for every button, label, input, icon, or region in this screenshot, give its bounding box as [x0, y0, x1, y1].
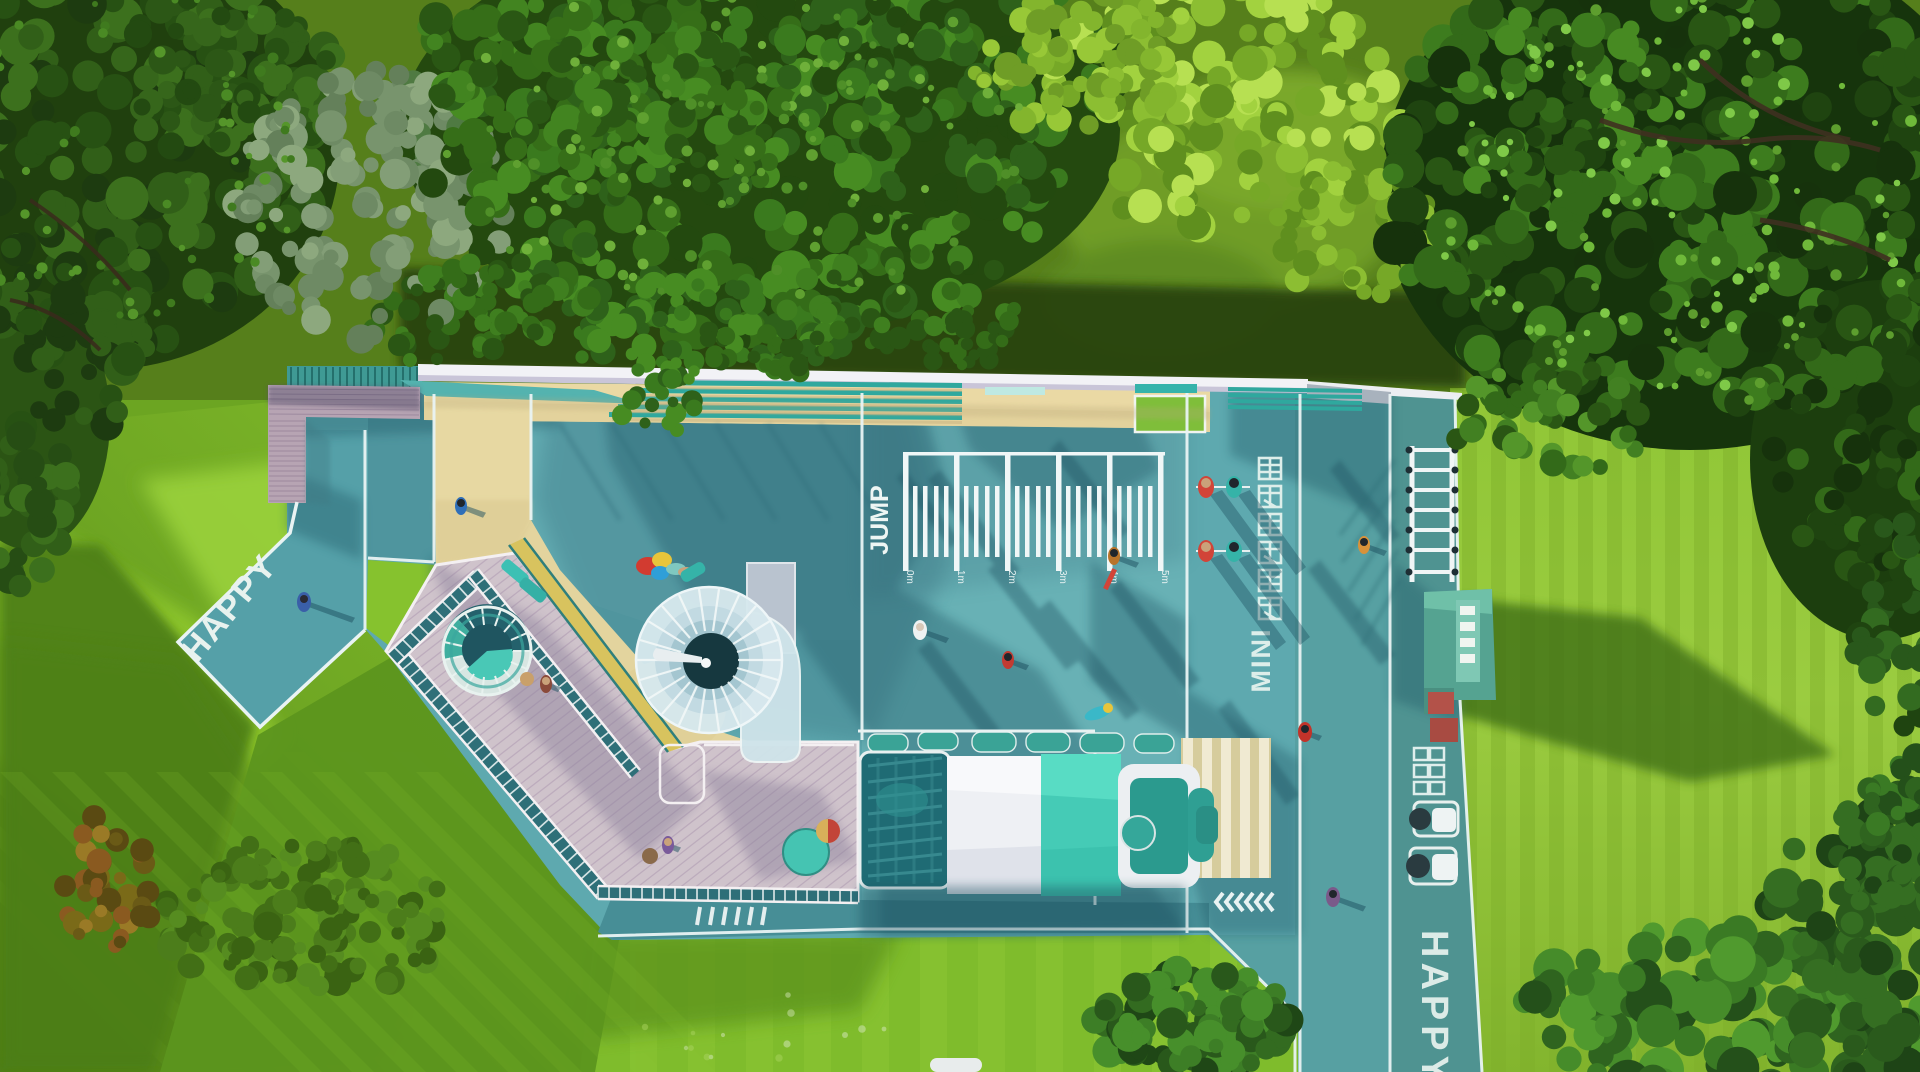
svg-text:5m: 5m	[1159, 570, 1170, 584]
svg-text:JUMP: JUMP	[866, 485, 894, 554]
svg-text:0m: 0m	[904, 570, 915, 584]
svg-text:3m: 3m	[1057, 570, 1068, 584]
svg-text:1m: 1m	[955, 570, 966, 584]
svg-text:HAPPY: HAPPY	[1413, 930, 1455, 1072]
svg-text:2m: 2m	[1006, 570, 1017, 584]
